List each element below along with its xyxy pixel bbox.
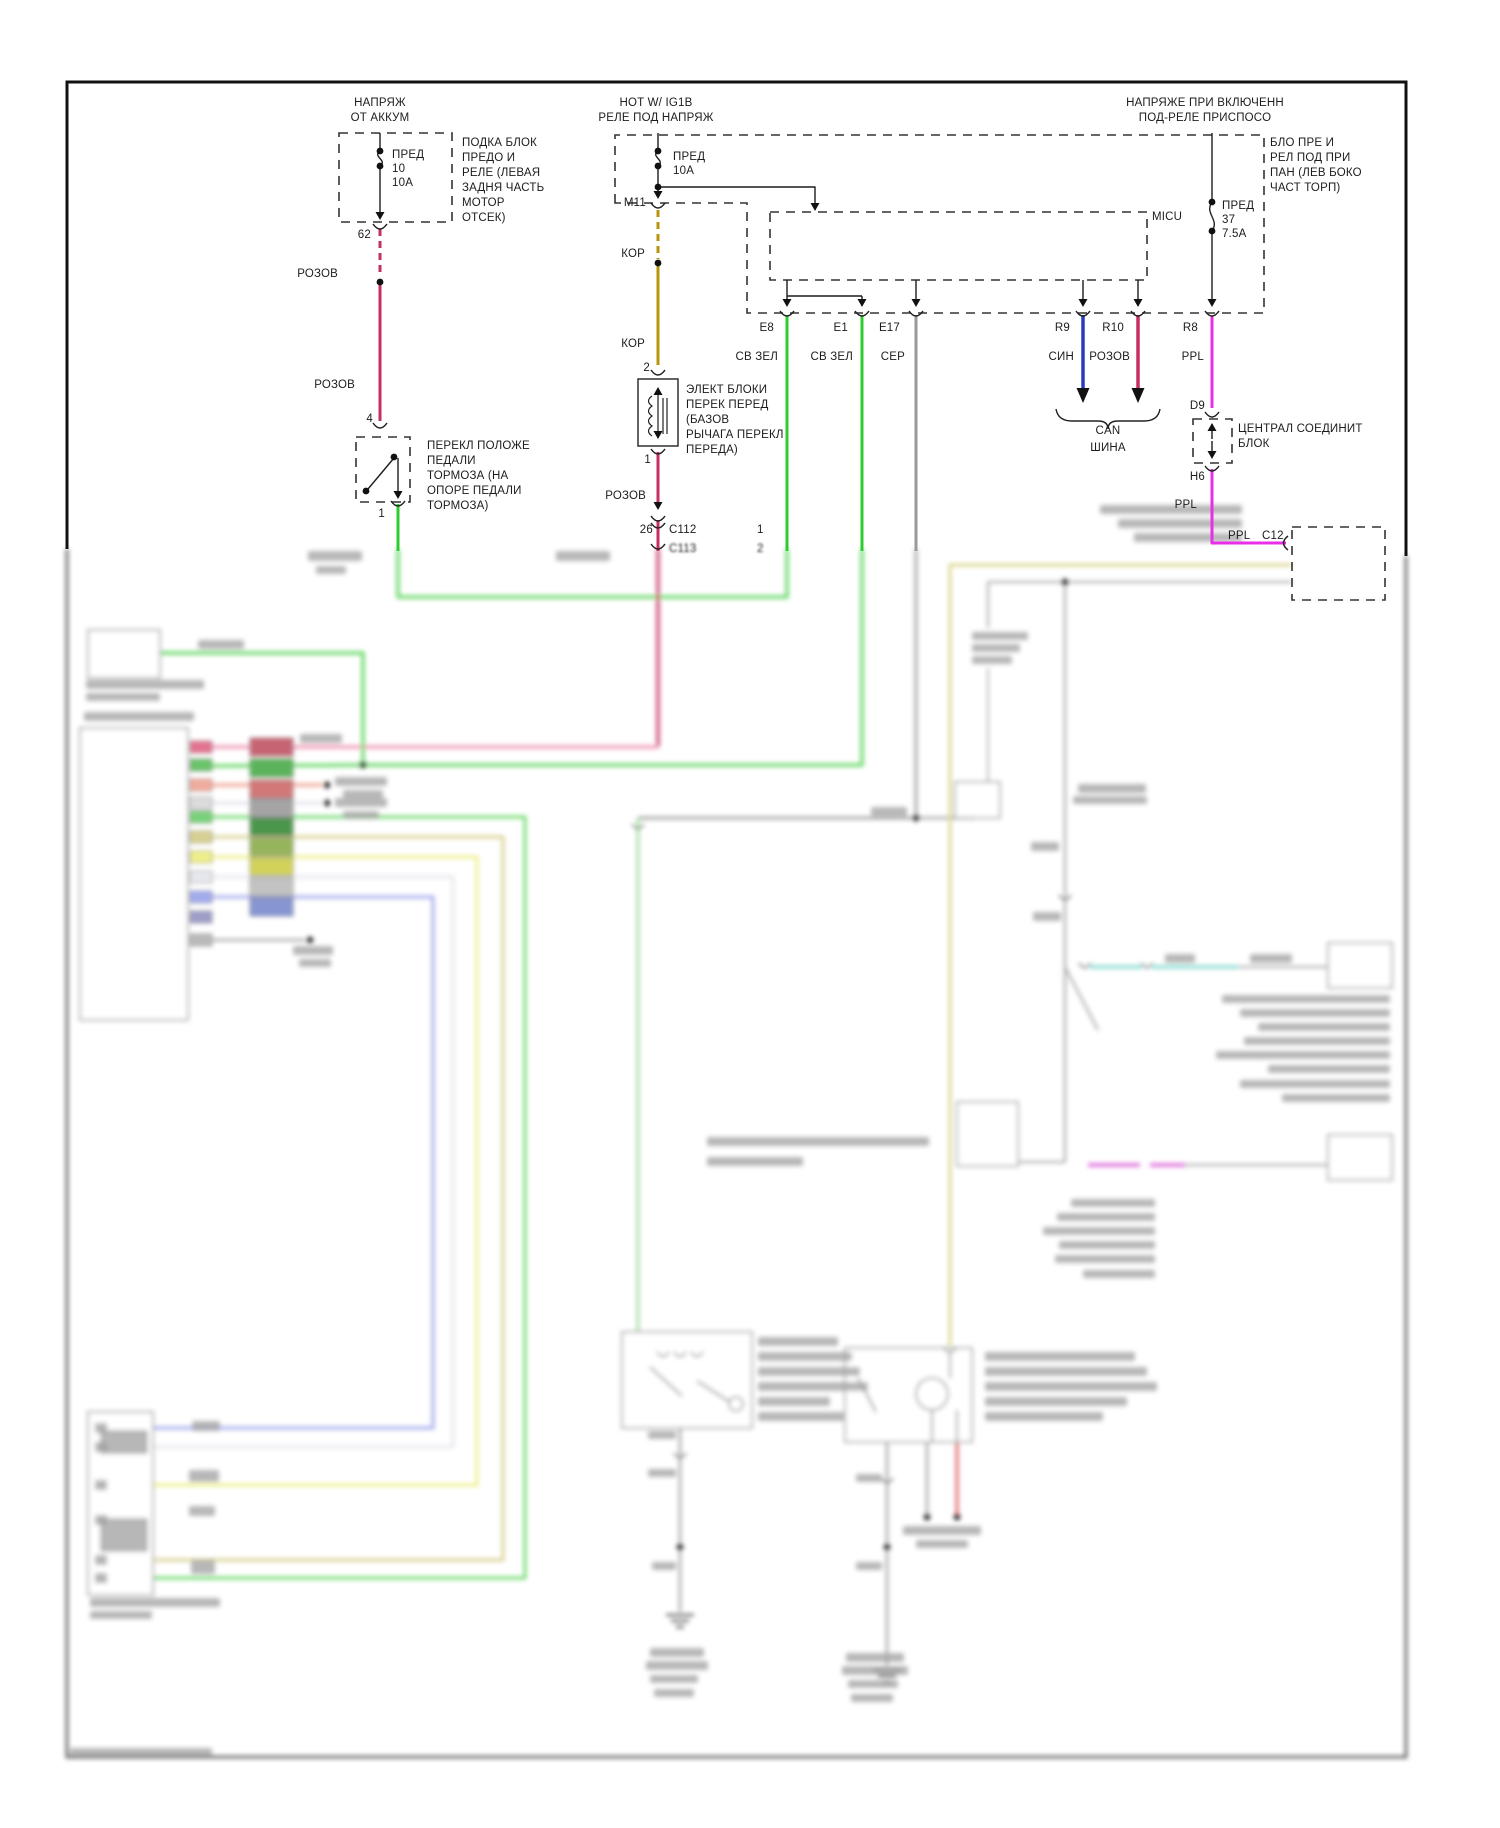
page-border xyxy=(67,82,1406,556)
lbl-svzel-2: СВ ЗЕЛ xyxy=(810,351,853,363)
pin-1c: 1 xyxy=(757,524,764,536)
connector-0 xyxy=(373,224,387,229)
junction-dot-blur-7 xyxy=(883,1543,890,1550)
c12-box xyxy=(1292,527,1385,600)
junction-dot-3 xyxy=(363,488,370,495)
blurred-text-8 xyxy=(84,712,194,721)
box1-l6: ОТСЕК) xyxy=(462,212,506,224)
blurred-text-12 xyxy=(335,798,387,807)
arrow-down-11 xyxy=(1208,451,1217,459)
can-arrowhead-1 xyxy=(1132,388,1145,403)
left-connector-cell-4 xyxy=(250,818,293,836)
arrow-down-4 xyxy=(654,502,663,510)
relay-block xyxy=(845,1348,972,1442)
box3-l2: РЕЛ ПОД ПРИ xyxy=(1270,152,1350,164)
pin-e1: E1 xyxy=(834,322,848,334)
blurred-text-48 xyxy=(758,1412,844,1421)
blk2-l2: ПЕРЕК ПЕРЕД xyxy=(686,399,768,411)
blurred-text-70 xyxy=(90,1598,220,1607)
fuse2-l1: ПРЕД xyxy=(673,151,705,163)
can-arrowhead-0 xyxy=(1077,388,1090,403)
blurred-text-29 xyxy=(1071,1199,1155,1207)
left-block-pin-9 xyxy=(190,911,212,923)
wiring-diagram-canvas: НАПРЯЖОТ АККУМHOT W/ IG1BРЕЛЕ ПОД НАПРЯЖ… xyxy=(0,0,1500,1828)
pin-e8: E8 xyxy=(760,322,774,334)
cjb-l2: БЛОК xyxy=(1238,438,1270,450)
blurred-lower-section xyxy=(67,505,1406,1757)
fuse1-l1: ПРЕД xyxy=(392,149,424,161)
lbl-can-1: CAN xyxy=(1096,425,1121,437)
blurred-text-67 xyxy=(848,1680,898,1688)
blurred-text-2 xyxy=(308,551,362,561)
pin-h6: H6 xyxy=(1190,471,1205,483)
blurred-text-41 xyxy=(972,644,1020,652)
fuse-10a-battery-dot-top xyxy=(377,148,384,155)
lbl-kor-2: КОР xyxy=(621,338,645,350)
left-connector-cell-1 xyxy=(250,759,293,777)
bottom-left-pin-4 xyxy=(95,1555,107,1565)
junction-dot-blur-3 xyxy=(323,781,330,788)
arrow-down-10 xyxy=(1208,299,1217,307)
lbl-ppl-1: PPL xyxy=(1182,351,1205,363)
left-block-pin-5 xyxy=(190,831,212,843)
pin-2c: 2 xyxy=(757,543,764,555)
connector-9 xyxy=(909,311,923,316)
small-box-topleft xyxy=(88,630,160,678)
blk2-l1: ЭЛЕКТ БЛОКИ xyxy=(686,384,767,396)
blurred-text-42 xyxy=(972,656,1012,664)
magenta-right-box xyxy=(1328,1135,1392,1180)
lbl-svzel-1: СВ ЗЕЛ xyxy=(735,351,778,363)
fuse-10a-ig1b-dot-bottom xyxy=(655,163,662,170)
junction-dot-blur-4 xyxy=(323,799,330,806)
lbl-c12: C12 xyxy=(1262,530,1284,542)
teal-right-box xyxy=(1328,943,1392,988)
connector-7 xyxy=(780,311,794,316)
fuse-10a-ig1b-dot-top xyxy=(655,148,662,155)
left-block-pin-8 xyxy=(190,891,212,903)
fuse-37-dot-top xyxy=(1209,199,1216,206)
fuse3-l2: 37 xyxy=(1222,214,1235,226)
connector-2 xyxy=(651,370,665,375)
blurred-text-45 xyxy=(758,1367,860,1376)
lbl-sin: СИН xyxy=(1049,351,1074,363)
blurred-text-11 xyxy=(343,790,383,798)
blurred-text-47 xyxy=(758,1397,830,1406)
blurred-text-69 xyxy=(70,1748,212,1756)
switch-arm-wire xyxy=(368,458,394,489)
blurred-text-4 xyxy=(556,551,610,561)
connector-3 xyxy=(651,449,665,454)
hdr-acc-1: НАПРЯЖЕ ПРИ ВКЛЮЧЕНН xyxy=(1126,97,1284,109)
pin-62: 62 xyxy=(358,229,371,241)
blurred-text-59 xyxy=(650,1648,704,1657)
hdr-batt-2: ОТ АККУМ xyxy=(351,112,410,124)
blurred-text-61 xyxy=(650,1675,698,1683)
fuse-37-dot-bottom xyxy=(1209,228,1216,235)
junction-dot-1 xyxy=(655,184,662,191)
fuse3-l1: ПРЕД xyxy=(1222,200,1254,212)
box1-l2: ПРЕДО И xyxy=(462,152,515,164)
blurred-text-0 xyxy=(707,1137,929,1146)
blurred-text-76 xyxy=(100,1430,148,1454)
sw-l3: ТОРМОЗА (НА xyxy=(427,470,508,482)
box1-l1: ПОДКА БЛОК xyxy=(462,137,537,149)
cjb-l1: ЦЕНТРАЛ СОЕДИНИТ xyxy=(1238,423,1363,435)
lbl-can-2: ШИНА xyxy=(1090,442,1126,454)
arrow-down-8 xyxy=(1079,299,1088,307)
blurred-text-46 xyxy=(758,1382,868,1391)
teal-switch-arm-wire xyxy=(1065,967,1098,1030)
blk2-l5: ПЕРЕДА) xyxy=(686,444,738,456)
pin-1b: 1 xyxy=(644,454,651,466)
blurred-text-52 xyxy=(985,1397,1127,1406)
blurred-text-50 xyxy=(985,1367,1147,1376)
hdr-batt-1: НАПРЯЖ xyxy=(354,97,406,109)
left-connector-cell-5 xyxy=(250,838,293,856)
blurred-text-28 xyxy=(1282,1094,1390,1102)
big-left-block xyxy=(80,728,188,1020)
blurred-text-23 xyxy=(1258,1023,1390,1031)
blurred-text-60 xyxy=(646,1661,708,1670)
junction-dot-blur-8 xyxy=(923,1513,930,1520)
blurred-text-53 xyxy=(985,1412,1103,1421)
box3-l1: БЛО ПРЕ И xyxy=(1270,137,1334,149)
junction-dot-blur-9 xyxy=(953,1513,960,1520)
box1-l5: МОТОР xyxy=(462,197,505,209)
green-link-e1-wire xyxy=(212,549,862,766)
box1-l3: РЕЛЕ (ЛЕВАЯ xyxy=(462,167,540,179)
blurred-text-34 xyxy=(1083,1270,1155,1278)
lbl-c112: C112 xyxy=(669,524,696,536)
left-block-pin-1 xyxy=(190,759,212,771)
blurred-text-75 xyxy=(191,1560,215,1574)
blurred-text-1 xyxy=(707,1157,803,1166)
blurred-text-49 xyxy=(985,1352,1135,1361)
blurred-text-26 xyxy=(1268,1065,1390,1073)
arrow-down-3 xyxy=(394,491,403,499)
bottom-switch-block xyxy=(622,1332,752,1428)
pin-4: 4 xyxy=(366,413,373,425)
pin-d9: D9 xyxy=(1190,400,1205,412)
junction-dot-0 xyxy=(377,279,384,286)
arrow-down-9 xyxy=(1134,299,1143,307)
blurred-text-3 xyxy=(316,566,346,574)
blurred-text-74 xyxy=(189,1506,215,1516)
junction-dot-2 xyxy=(655,260,662,267)
blk2-l3: (БАЗОВ xyxy=(686,414,729,426)
lbl-kor-1: КОР xyxy=(621,248,645,260)
left-block-pin-2 xyxy=(190,779,212,791)
blurred-text-77 xyxy=(100,1518,148,1552)
left-block-pin-4 xyxy=(190,811,212,823)
blurred-text-51 xyxy=(985,1382,1157,1391)
blurred-text-22 xyxy=(1240,1009,1390,1017)
blurred-text-58 xyxy=(652,1562,676,1570)
left-block-pin-0 xyxy=(190,741,212,753)
junction-dot-blur-0 xyxy=(359,761,366,768)
blurred-text-31 xyxy=(1043,1227,1155,1235)
pin-r8: R8 xyxy=(1183,322,1198,334)
left-block-pin-6 xyxy=(190,851,212,863)
connector-blur-3 xyxy=(1079,963,1091,968)
blurred-text-36 xyxy=(1118,519,1242,528)
pin-1a: 1 xyxy=(378,508,385,520)
blurred-text-10 xyxy=(335,777,387,786)
micu-box xyxy=(770,212,1147,280)
connector-11 xyxy=(1131,311,1145,316)
sw-l4: ОПОРЕ ПЕДАЛИ xyxy=(427,485,522,497)
hdr-acc-2: ПОД-РЕЛЕ ПРИСПОСО xyxy=(1139,112,1271,124)
connector-blur-4 xyxy=(1141,963,1153,968)
box1-l4: ЗАДНЯ ЧАСТЬ xyxy=(462,182,544,194)
arrow-down-2 xyxy=(811,203,820,211)
blurred-text-72 xyxy=(192,1421,220,1431)
blurred-text-14 xyxy=(293,946,333,955)
lbl-micu: MICU xyxy=(1152,211,1182,223)
blurred-text-38 xyxy=(1078,784,1146,793)
box3-l3: ПАН (ЛЕВ БОКО xyxy=(1270,167,1362,179)
left-block-pin-3 xyxy=(190,797,212,809)
blurred-text-17 xyxy=(1031,842,1059,851)
left-connector-cell-3 xyxy=(250,799,293,817)
blurred-text-39 xyxy=(1073,796,1147,804)
blurred-text-73 xyxy=(189,1470,219,1482)
arrow-down-1 xyxy=(654,191,663,199)
fan-blue-wire xyxy=(153,897,433,1428)
blurred-text-57 xyxy=(648,1469,676,1477)
blurred-text-55 xyxy=(916,1540,968,1548)
ig1b-feed-wire xyxy=(658,187,815,209)
blurred-text-37 xyxy=(1134,533,1242,542)
left-connector-cell-8 xyxy=(250,898,293,916)
blurred-text-7 xyxy=(198,640,244,649)
bottom-left-pin-5 xyxy=(95,1573,107,1583)
left-block-pin-7 xyxy=(190,871,212,883)
hdr-ig1b-1: HOT W/ IG1B xyxy=(620,97,693,109)
junction-dot-blur-2 xyxy=(1061,578,1068,585)
blurred-text-9 xyxy=(300,734,342,743)
blurred-text-16 xyxy=(871,807,907,816)
blurred-text-6 xyxy=(86,693,160,701)
fuse-10a-battery-dot-bottom xyxy=(377,163,384,170)
pin-m11: M11 xyxy=(624,197,646,209)
blurred-text-64 xyxy=(856,1562,882,1570)
junction-dot-blur-6 xyxy=(676,1543,683,1550)
connector-14 xyxy=(1205,466,1219,471)
blurred-text-13 xyxy=(343,811,379,819)
fuse1-l2: 10 xyxy=(392,163,405,175)
arrow-down-7 xyxy=(912,299,921,307)
left-connector-cell-0 xyxy=(250,738,293,756)
box-above-magenta xyxy=(957,1102,1018,1166)
fuse1-l3: 10A xyxy=(392,177,413,189)
fuse-37-element xyxy=(1210,202,1215,231)
blurred-text-71 xyxy=(90,1611,152,1619)
blurred-text-27 xyxy=(1240,1080,1390,1088)
fuse2-l2: 10A xyxy=(673,165,694,177)
connector-16 xyxy=(373,423,387,428)
box3-l4: ЧАСТ ТОРП) xyxy=(1270,182,1340,194)
fan-green-1-wire xyxy=(153,817,525,1578)
lbl-ppl-2: PPL xyxy=(1175,499,1198,511)
sw-l5: ТОРМОЗА) xyxy=(427,500,489,512)
sw-l2: ПЕДАЛИ xyxy=(427,455,476,467)
blurred-text-33 xyxy=(1055,1255,1155,1263)
blurred-text-43 xyxy=(758,1337,838,1346)
bottom-left-pin-2 xyxy=(95,1480,107,1490)
blurred-text-44 xyxy=(758,1352,852,1361)
left-connector-cell-6 xyxy=(250,858,293,876)
junction-dot-blur-1 xyxy=(912,814,919,821)
blurred-text-66 xyxy=(842,1666,908,1675)
left-connector-cell-2 xyxy=(250,780,293,798)
arrow-down-5 xyxy=(783,299,792,307)
pin-2: 2 xyxy=(643,362,650,374)
sw-l1: ПЕРЕКЛ ПОЛОЖЕ xyxy=(427,440,530,452)
blurred-text-56 xyxy=(648,1431,676,1439)
fuse3-l3: 7.5A xyxy=(1222,228,1247,240)
connector-4 xyxy=(651,516,665,521)
blurred-text-68 xyxy=(851,1694,893,1702)
arrow-down-6 xyxy=(858,299,867,307)
blurred-text-30 xyxy=(1057,1213,1155,1221)
blurred-text-18 xyxy=(1033,912,1061,921)
blurred-text-40 xyxy=(972,632,1028,640)
connector-13 xyxy=(1205,412,1219,417)
lbl-c113: C113 xyxy=(669,543,696,555)
page-border-blurred xyxy=(67,549,1406,1757)
blurred-text-32 xyxy=(1059,1241,1155,1249)
blurred-text-65 xyxy=(846,1653,904,1662)
left-connector-cell-7 xyxy=(250,878,293,896)
lbl-rozov-2: РОЗОВ xyxy=(314,379,355,391)
lbl-rozov-3: РОЗОВ xyxy=(605,490,646,502)
lbl-ppl-3: PPL xyxy=(1228,530,1251,542)
blurred-text-54 xyxy=(903,1526,981,1535)
pin-r9: R9 xyxy=(1055,322,1070,334)
pin-r10: R10 xyxy=(1102,322,1124,334)
arrow-up-0 xyxy=(1208,423,1217,431)
pin-26: 26 xyxy=(640,524,653,536)
ig1b-acc-box xyxy=(615,135,1264,313)
blurred-text-24 xyxy=(1244,1037,1390,1045)
left-block-pin-10 xyxy=(190,934,212,946)
pin-e17: E17 xyxy=(879,322,900,334)
lbl-rozov-4: РОЗОВ xyxy=(1089,351,1130,363)
component-box xyxy=(955,782,1000,818)
blurred-text-25 xyxy=(1216,1051,1390,1059)
wiring-diagram-page: НАПРЯЖОТ АККУМHOT W/ IG1BРЕЛЕ ПОД НАПРЯЖ… xyxy=(0,0,1500,1828)
blurred-text-19 xyxy=(1165,954,1195,963)
blurred-text-15 xyxy=(299,959,331,967)
blurred-text-35 xyxy=(1100,505,1242,514)
junction-dot-4 xyxy=(391,454,398,461)
junction-dot-blur-5 xyxy=(306,936,313,943)
blurred-text-62 xyxy=(654,1689,694,1697)
blurred-text-20 xyxy=(1250,954,1292,963)
lbl-ser: СЕР xyxy=(881,351,905,363)
blurred-text-5 xyxy=(86,680,204,689)
blurred-text-63 xyxy=(856,1474,882,1482)
arrow-down-0 xyxy=(376,212,385,220)
hdr-ig1b-2: РЕЛЕ ПОД НАПРЯЖ xyxy=(598,112,713,124)
lbl-rozov-1: РОЗОВ xyxy=(297,268,338,280)
blk2-l4: РЫЧАГА ПЕРЕКЛ xyxy=(686,429,784,441)
blurred-text-21 xyxy=(1222,995,1390,1003)
